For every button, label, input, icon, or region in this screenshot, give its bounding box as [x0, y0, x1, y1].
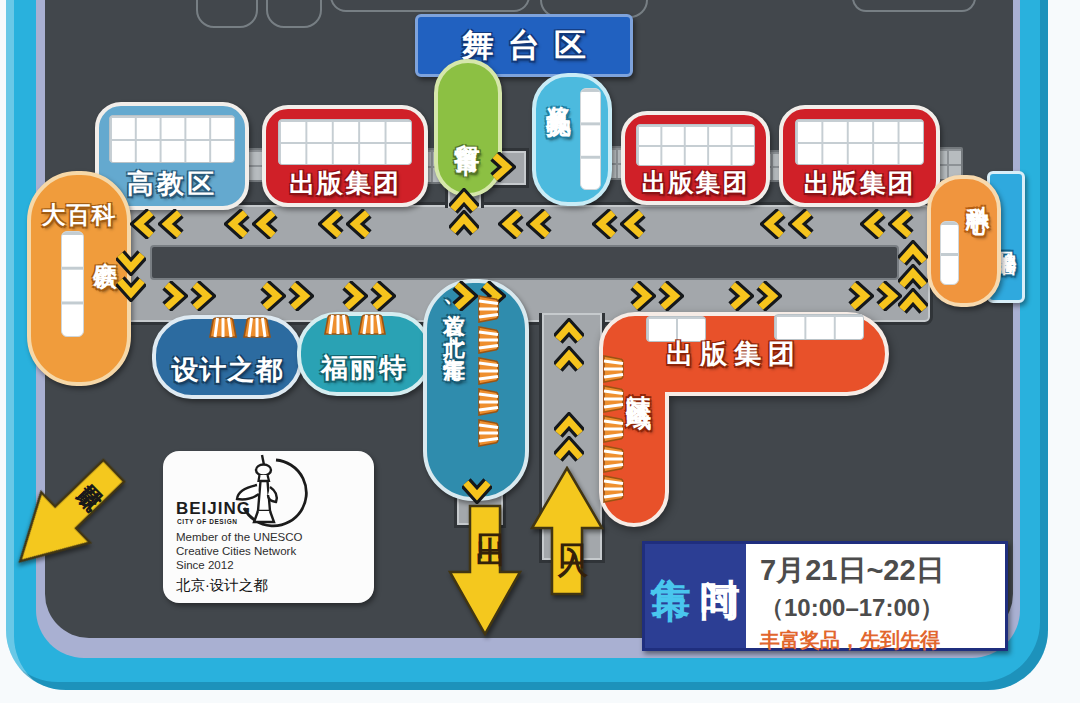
- booth-publishing-2: 出版集团: [621, 111, 770, 205]
- logo-member-line: Creative Cities Network: [176, 545, 296, 557]
- loop-path-island: [150, 245, 899, 280]
- booth-tables: [940, 221, 959, 285]
- flow-chevron-icon: [860, 209, 890, 239]
- exit-arrow: 出口: [446, 504, 524, 636]
- flow-chevron-icon: [116, 272, 146, 302]
- unesco-logo-card: BEIJING CITY OF DESIGN Member of the UNE…: [163, 451, 374, 603]
- booth-tables: [109, 115, 235, 163]
- entrance-arrow: 入口: [529, 466, 605, 596]
- flow-chevron-icon: [486, 152, 516, 182]
- booth-tables: [278, 119, 412, 165]
- booth-label: 社区区域: [623, 374, 656, 390]
- booth-tables: [795, 119, 924, 165]
- flow-chevron-icon: [526, 209, 556, 239]
- booth-tables: [61, 231, 84, 337]
- flow-chevron-icon: [620, 209, 650, 239]
- awning-stall-icon: [599, 414, 625, 444]
- schedule-hours: （10:00–17:00）: [760, 592, 1005, 624]
- flow-chevron-icon: [318, 209, 348, 239]
- awning-stall-icon: [474, 418, 500, 448]
- flow-chevron-icon: [366, 281, 396, 311]
- awning-stall-icon: [242, 316, 272, 342]
- flow-chevron-icon: [592, 209, 622, 239]
- top-edge-outline: [330, 0, 530, 12]
- awning-stall-icon: [599, 444, 625, 474]
- logo-brand-sub: CITY OF DESIGN: [177, 518, 238, 525]
- flow-chevron-icon: [554, 346, 584, 376]
- awning-stall-icon: [208, 316, 238, 342]
- schedule-box: 集市 时间 7月21日~22日 （10:00–17:00） 丰富奖品，先到先得: [642, 541, 1008, 651]
- flow-chevron-icon: [654, 281, 684, 311]
- logo-member-line: Member of the UNESCO: [176, 531, 303, 543]
- up-arrow-icon: [529, 466, 605, 596]
- flow-chevron-icon: [898, 288, 928, 318]
- logo-member-line: Since 2012: [176, 559, 234, 571]
- flow-chevron-icon: [844, 281, 874, 311]
- booth-prize-exchange: 奖品兑换: [532, 73, 612, 206]
- flow-chevron-icon: [224, 209, 254, 239]
- flow-chevron-icon: [346, 209, 376, 239]
- flow-chevron-icon: [338, 281, 368, 311]
- awning-stall-icon: [357, 313, 387, 339]
- flow-chevron-icon: [626, 281, 656, 311]
- flow-chevron-icon: [284, 281, 314, 311]
- down-arrow-icon: [446, 504, 524, 636]
- booth-publishing-3: 出版集团: [779, 105, 940, 207]
- flow-chevron-icon: [158, 281, 188, 311]
- schedule-title: 集市 时间: [645, 544, 746, 648]
- booth-publishing-1: 出版集团: [262, 105, 428, 207]
- flow-chevron-icon: [724, 281, 754, 311]
- awning-stall-icon: [474, 387, 500, 417]
- logo-brand: BEIJING: [176, 499, 251, 519]
- flow-chevron-icon: [498, 209, 528, 239]
- top-edge-outline: [852, 0, 976, 12]
- awning-stall-icon: [323, 313, 353, 339]
- booth-tables: [580, 88, 601, 190]
- booth-label: 留言打卡: [452, 124, 485, 132]
- booth-science-center: 科学中心: [927, 175, 1001, 307]
- booth-label: 设计之都: [156, 352, 299, 388]
- top-edge-outline: [196, 0, 258, 28]
- awning-stall-icon: [599, 384, 625, 414]
- awning-stall-icon: [474, 294, 500, 324]
- awning-stall-icon: [474, 325, 500, 355]
- flow-chevron-icon: [760, 209, 790, 239]
- booth-label: 福丽特: [301, 350, 428, 386]
- flow-chevron-icon: [252, 209, 282, 239]
- schedule-details: 7月21日~22日 （10:00–17:00） 丰富奖品，先到先得: [746, 544, 1005, 648]
- booth-label: 出版集团: [625, 166, 766, 199]
- top-edge-outline: [266, 0, 322, 28]
- booth-tables: [636, 124, 755, 166]
- schedule-title-time: 时间: [697, 546, 743, 648]
- flow-chevron-icon: [554, 318, 584, 348]
- awning-stall-icon: [474, 356, 500, 386]
- flow-chevron-icon: [752, 281, 782, 311]
- booth-label: 科学中心: [963, 187, 994, 195]
- flow-chevron-icon: [554, 436, 584, 466]
- flow-chevron-icon: [888, 209, 918, 239]
- schedule-date: 7月21日~22日: [760, 551, 1005, 591]
- flow-chevron-icon: [186, 281, 216, 311]
- flow-chevron-icon: [462, 474, 492, 504]
- booth-label: 大百科: [31, 199, 127, 231]
- booth-label: 出版集团: [783, 166, 936, 201]
- awning-stall-icon: [599, 474, 625, 504]
- booth-label: 奖品兑换: [543, 86, 576, 94]
- event-market-map: 舞台区 高教区 出版集团 留言打卡 奖品兑换 出版集团 出版集团 品牌墙 科学中…: [0, 0, 1080, 703]
- flow-chevron-icon: [449, 210, 479, 240]
- schedule-title-market: 集市: [648, 546, 694, 648]
- flow-chevron-icon: [158, 209, 188, 239]
- schedule-note: 丰富奖品，先到先得: [760, 627, 1005, 654]
- booth-label: 出版集团: [266, 166, 424, 201]
- booth-label: 出版集团: [650, 336, 818, 372]
- logo-cn-name: 北京·设计之都: [176, 576, 268, 595]
- awning-stall-icon: [599, 354, 625, 384]
- flow-chevron-icon: [130, 209, 160, 239]
- flow-chevron-icon: [256, 281, 286, 311]
- flow-chevron-icon: [788, 209, 818, 239]
